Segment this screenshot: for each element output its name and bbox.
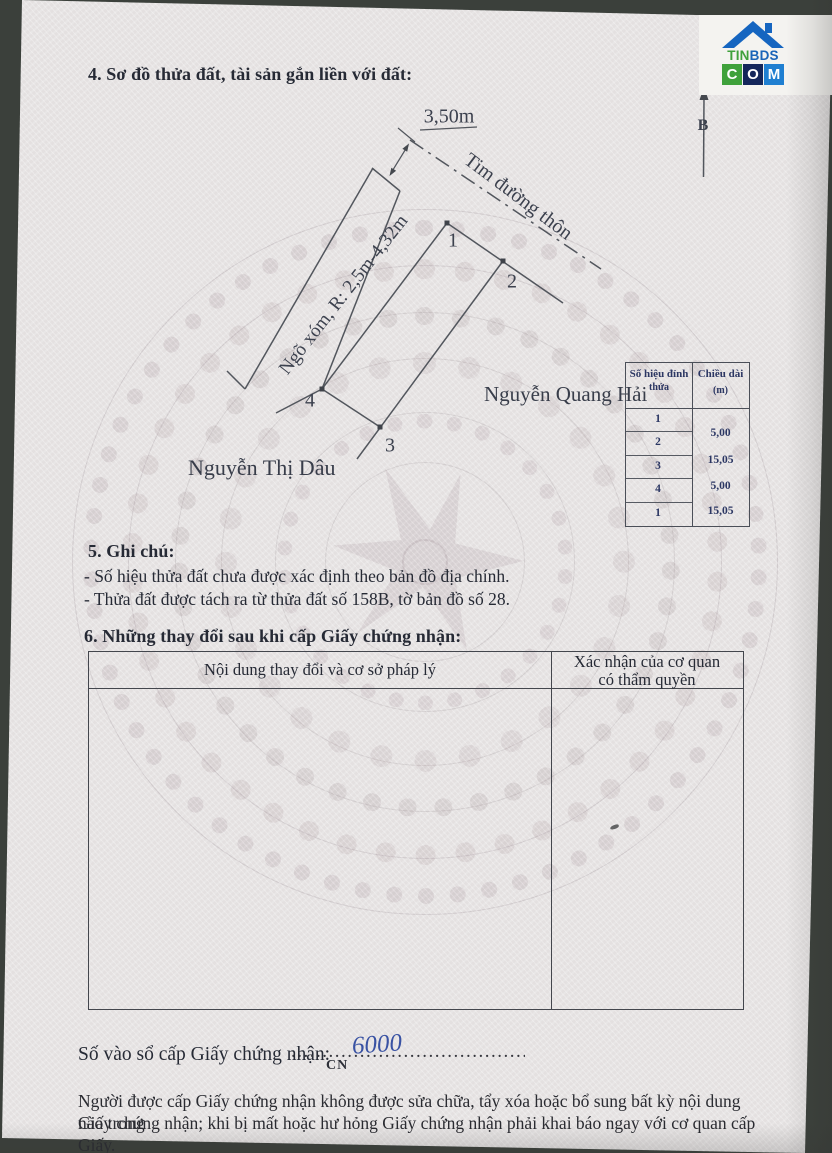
header-col2-line2: (m)	[694, 384, 747, 397]
changes-table-col2-header: Xác nhận của cơ quan có thẩm quyền	[551, 653, 743, 689]
vertex-number: 4	[626, 483, 690, 495]
edge-length: 15,05	[694, 505, 747, 517]
vertex-label-2: 2	[507, 271, 517, 294]
edge-length: 5,00	[694, 480, 747, 492]
vertex-table-column-divider	[692, 363, 693, 526]
logo-block-c: C	[722, 64, 742, 85]
logo-com-blocks: C O M	[718, 64, 788, 85]
road-width-dimension: 3,50m	[424, 106, 475, 129]
house-roof-icon	[720, 19, 786, 49]
edge-length: 15,05	[694, 454, 747, 466]
vertex-length-table: Số hiệu đỉnh thửa Chiều dài (m) 1 2 3 4 …	[625, 362, 750, 527]
neighbor-right-name: Nguyễn Quang Hải	[484, 382, 647, 407]
tinbds-logo: TINBDS C O M	[718, 19, 788, 85]
header-col1-line2: thửa	[628, 381, 690, 394]
section6-heading: 6. Những thay đổi sau khi cấp Giấy chứng…	[84, 626, 461, 647]
logo-word-bds: BDS	[750, 48, 779, 63]
vertex-label-4: 4	[305, 390, 315, 413]
logo-block-m: M	[764, 64, 784, 85]
logo-block-o: O	[743, 64, 763, 85]
vertex-number: 3	[626, 460, 690, 472]
north-label: B	[698, 117, 709, 135]
vertex-number: 2	[626, 436, 690, 448]
vertex-row-line	[626, 478, 692, 479]
header-col1-line1: Số hiệu đỉnh	[628, 368, 690, 381]
vertex-label-1: 1	[448, 230, 458, 253]
changes-table-col1-header: Nội dung thay đổi và cơ sở pháp lý	[89, 660, 551, 680]
changes-table: Nội dung thay đổi và cơ sở pháp lý Xác n…	[88, 651, 744, 1010]
section5-heading: 5. Ghi chú:	[88, 541, 175, 562]
col2-header-line2: có thẩm quyền	[551, 671, 743, 689]
vertex-number: 1	[626, 507, 690, 519]
vertex-table-header-separator	[626, 408, 749, 409]
vertex-label-3: 3	[385, 435, 395, 458]
logo-wordmark: TINBDS	[718, 49, 788, 62]
vertex-row-line	[626, 502, 692, 503]
neighbor-left-name: Nguyễn Thị Dâu	[188, 455, 335, 481]
vertex-table-header-col1: Số hiệu đỉnh thửa	[628, 368, 690, 394]
vertex-number: 1	[626, 413, 690, 425]
document-photo: TINBDS C O M 4. Sơ đồ thửa đất, tài sản …	[0, 0, 832, 1153]
logo-word-tin: TIN	[727, 48, 749, 63]
col2-header-line1: Xác nhận của cơ quan	[551, 653, 743, 671]
vertex-row-line	[626, 455, 692, 456]
changes-table-column-divider	[551, 652, 552, 1009]
register-value-handwritten: 6000	[351, 1029, 403, 1060]
note-line-1: - Số hiệu thửa đất chưa được xác định th…	[84, 566, 510, 587]
notice-line-2: Giấy chứng nhận; khi bị mất hoặc hư hỏng…	[78, 1112, 760, 1153]
note-line-2: - Thửa đất được tách ra từ thửa đất số 1…	[84, 589, 510, 610]
edge-length: 5,00	[694, 427, 747, 439]
section4-heading: 4. Sơ đồ thửa đất, tài sản gắn liền với …	[88, 64, 412, 85]
vertex-row-line	[626, 431, 692, 432]
header-col2-line1: Chiều dài	[694, 368, 747, 381]
vertex-table-header-col2: Chiều dài (m)	[694, 368, 747, 397]
register-prefix: CN	[326, 1058, 348, 1074]
